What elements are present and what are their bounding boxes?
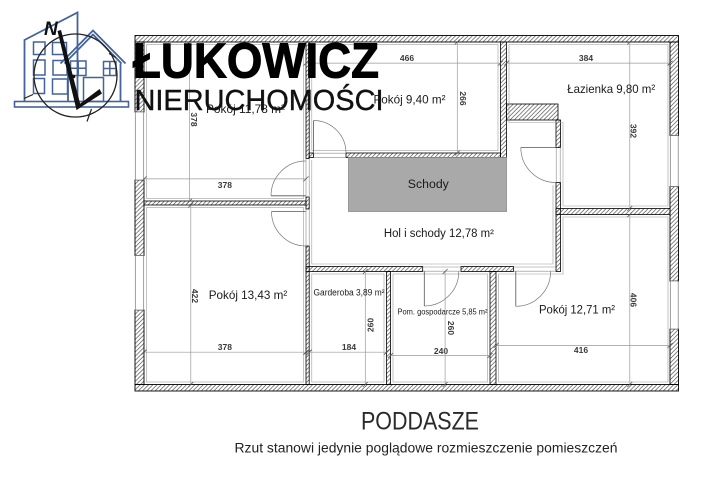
svg-text:422: 422	[190, 289, 200, 303]
svg-text:Łazienka 9,80 m²: Łazienka 9,80 m²	[567, 82, 655, 96]
svg-text:466: 466	[400, 53, 414, 63]
svg-text:384: 384	[579, 53, 593, 63]
svg-text:378: 378	[218, 180, 232, 190]
svg-text:240: 240	[434, 346, 448, 356]
svg-text:PODDASZE: PODDASZE	[361, 408, 479, 436]
svg-text:184: 184	[342, 342, 356, 352]
svg-text:ŁUKOWICZ: ŁUKOWICZ	[133, 35, 379, 89]
svg-text:416: 416	[574, 345, 588, 355]
svg-text:Pokój 9,40 m²: Pokój 9,40 m²	[374, 93, 446, 107]
svg-text:392: 392	[629, 124, 639, 138]
svg-text:Garderoba 3,89 m²: Garderoba 3,89 m²	[314, 288, 385, 298]
svg-text:NIERUCHOMOŚCI: NIERUCHOMOŚCI	[135, 83, 384, 117]
svg-text:Hol i schody 12,78 m²: Hol i schody 12,78 m²	[384, 228, 494, 240]
svg-text:Pokój 12,71 m²: Pokój 12,71 m²	[539, 303, 615, 317]
svg-text:266: 266	[458, 91, 468, 105]
svg-text:260: 260	[366, 318, 376, 332]
svg-text:N: N	[44, 19, 59, 40]
svg-text:378: 378	[218, 342, 232, 352]
svg-text:Pom. gospodarcze 5,85 m²: Pom. gospodarcze 5,85 m²	[398, 307, 488, 316]
svg-text:Schody: Schody	[408, 179, 449, 191]
svg-text:260: 260	[446, 321, 456, 335]
svg-text:Pokój 13,43 m²: Pokój 13,43 m²	[209, 288, 288, 302]
svg-text:406: 406	[629, 293, 639, 307]
svg-text:Rzut stanowi jedynie poglądowe: Rzut stanowi jedynie poglądowe rozmieszc…	[235, 440, 618, 456]
